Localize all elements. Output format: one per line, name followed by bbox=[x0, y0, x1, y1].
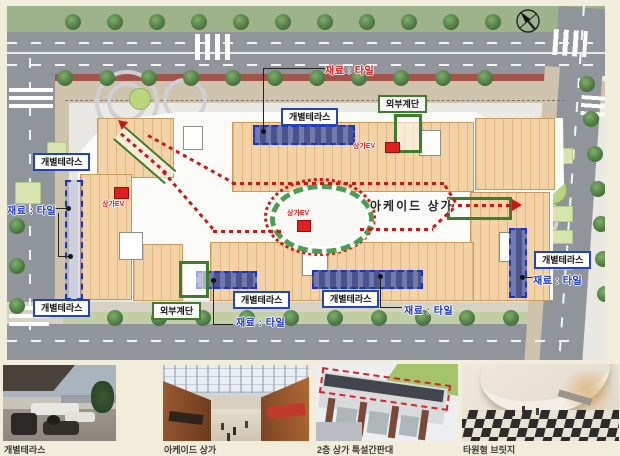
terrace-strip bbox=[312, 270, 423, 289]
terrace-strip bbox=[253, 125, 355, 145]
arcade-title: 아케이드 상가 bbox=[370, 197, 454, 214]
leader-line bbox=[263, 68, 264, 131]
tree-icon bbox=[371, 310, 387, 326]
ev-label: 상가EV bbox=[287, 208, 309, 218]
tree-icon bbox=[443, 14, 459, 30]
tree-icon bbox=[233, 14, 249, 30]
tree-icon bbox=[485, 14, 501, 30]
route-arrowhead bbox=[512, 199, 522, 211]
crosswalk bbox=[9, 88, 53, 110]
visitor-figure bbox=[536, 408, 539, 415]
material-label: 재료 : 타일 bbox=[533, 272, 582, 287]
tree-icon bbox=[359, 14, 375, 30]
tree-icon bbox=[183, 70, 199, 86]
tree-icon bbox=[435, 70, 451, 86]
shopper-figure bbox=[245, 421, 248, 428]
photo-terrace bbox=[3, 365, 116, 441]
tree-icon bbox=[401, 14, 417, 30]
photo-signboard-render bbox=[316, 364, 458, 441]
tree-icon bbox=[107, 14, 123, 30]
leader-line bbox=[213, 281, 214, 325]
ev-marker bbox=[385, 142, 400, 153]
terrace-label: 개별테라스 bbox=[41, 157, 82, 167]
route-dotted-line bbox=[450, 204, 512, 207]
site-plan-figure: 상가EV 상가EV 상가EV 개별테라스 개별테라스 개별테라스 개별테라스 개… bbox=[0, 0, 620, 456]
stairs-label: 외부계단 bbox=[160, 306, 193, 316]
tree-icon bbox=[225, 70, 241, 86]
tree-icon bbox=[595, 251, 605, 267]
photo-oval-bridge bbox=[462, 364, 619, 441]
oval-planter-ring bbox=[270, 184, 374, 254]
road-render bbox=[316, 422, 362, 441]
stairs-label-box: 외부계단 bbox=[378, 95, 427, 113]
photo-caption: 2층 상가 특설간판대 bbox=[317, 443, 393, 456]
ev-label: 상가EV bbox=[353, 141, 375, 151]
tree-icon bbox=[141, 70, 157, 86]
terrace-label: 개별테라스 bbox=[289, 112, 330, 122]
route-dotted-line bbox=[213, 230, 281, 233]
tree-icon bbox=[503, 310, 519, 326]
terrace-label: 개별테라스 bbox=[41, 303, 82, 313]
leader-line bbox=[380, 307, 402, 308]
tree-icon bbox=[597, 286, 605, 302]
leader-dot bbox=[66, 206, 71, 211]
tree-icon bbox=[57, 70, 73, 86]
tree-icon bbox=[309, 70, 325, 86]
leader-dot bbox=[68, 254, 73, 259]
bottom-road-lane-line bbox=[7, 340, 573, 342]
terrace-label-box: 개별테라스 bbox=[534, 251, 591, 269]
tree-icon bbox=[267, 70, 283, 86]
tree-icon bbox=[191, 14, 207, 30]
stairs-label: 외부계단 bbox=[386, 99, 419, 109]
terrace-label-box: 개별테라스 bbox=[322, 290, 379, 308]
wicker-chair bbox=[11, 413, 37, 435]
terrace-strip bbox=[509, 228, 527, 298]
terrace-label: 개별테라스 bbox=[330, 294, 371, 304]
storefront-glass bbox=[399, 415, 420, 437]
exit-corridor-box bbox=[447, 197, 512, 220]
leader-line bbox=[523, 277, 533, 278]
terrace-label: 개별테라스 bbox=[241, 295, 282, 305]
tree-icon bbox=[579, 76, 595, 92]
ev-label: 상가EV bbox=[102, 199, 124, 209]
tree-icon bbox=[477, 70, 493, 86]
stair-core bbox=[419, 130, 441, 156]
terrace-label: 개별테라스 bbox=[542, 255, 583, 265]
ev-marker bbox=[297, 220, 311, 232]
bottom-road bbox=[7, 324, 573, 360]
tree-icon bbox=[275, 14, 291, 30]
site-plan-map: 상가EV 상가EV 상가EV 개별테라스 개별테라스 개별테라스 개별테라스 개… bbox=[7, 6, 605, 360]
tree-icon bbox=[65, 14, 81, 30]
visitor-figure bbox=[522, 406, 525, 413]
leader-line bbox=[380, 277, 381, 308]
round-table bbox=[47, 415, 60, 425]
leader-line bbox=[263, 68, 325, 69]
stair-core bbox=[183, 126, 203, 150]
top-road bbox=[7, 32, 605, 76]
photo-caption: 개별테라스 bbox=[4, 443, 45, 456]
lawn-patch bbox=[15, 182, 41, 204]
route-dotted-line bbox=[360, 228, 433, 231]
tree-icon bbox=[593, 216, 605, 232]
terrace-awning bbox=[3, 365, 75, 391]
stair-core bbox=[119, 232, 143, 260]
shopper-figure bbox=[221, 423, 224, 430]
shopper-figure bbox=[227, 433, 230, 441]
terrace-label-box: 개별테라스 bbox=[233, 291, 290, 309]
route-dotted-line bbox=[232, 182, 447, 185]
plaza-planter bbox=[129, 88, 151, 110]
material-label: 재료 : 타일 bbox=[325, 62, 374, 77]
tree-icon bbox=[327, 310, 343, 326]
shop-block bbox=[475, 118, 555, 190]
ev-marker bbox=[114, 187, 129, 199]
leader-line bbox=[58, 213, 59, 257]
checkered-floor bbox=[462, 410, 619, 441]
storefront-glass bbox=[367, 411, 390, 436]
tree-icon bbox=[9, 298, 25, 314]
top-road-center-line bbox=[7, 52, 605, 54]
terrace-label-box: 개별테라스 bbox=[281, 108, 338, 126]
terrace-label-box: 개별테라스 bbox=[33, 153, 90, 171]
material-label: 재료 : 타일 bbox=[7, 202, 56, 217]
shopper-figure bbox=[233, 427, 236, 435]
photo-arcade-mall bbox=[163, 365, 309, 441]
crosswalk bbox=[195, 34, 235, 60]
terrace-strip bbox=[65, 180, 83, 300]
stairs-label-box: 외부계단 bbox=[152, 302, 201, 320]
tree-icon bbox=[149, 14, 165, 30]
photo-caption: 아케이드 상가 bbox=[164, 443, 216, 456]
tree-icon bbox=[283, 310, 299, 326]
crosswalk bbox=[552, 29, 588, 57]
leader-line bbox=[213, 324, 233, 325]
top-road-lane-line bbox=[7, 64, 605, 66]
terrace-label-box: 개별테라스 bbox=[33, 299, 90, 317]
leader-dot bbox=[261, 129, 266, 134]
external-stair-box bbox=[179, 261, 209, 298]
material-label: 재료 : 타일 bbox=[404, 302, 453, 317]
tree-icon bbox=[99, 70, 115, 86]
tree-icon bbox=[587, 146, 603, 162]
material-label: 재료 : 타일 bbox=[236, 314, 285, 329]
tree-icon bbox=[459, 310, 475, 326]
photo-caption: 타원형 브릿지 bbox=[463, 443, 515, 456]
north-compass-icon bbox=[513, 6, 543, 36]
top-road-lane-line bbox=[7, 42, 605, 44]
conifer-tree bbox=[91, 381, 114, 413]
tree-icon bbox=[9, 218, 25, 234]
mall-floor bbox=[211, 409, 261, 441]
tree-icon bbox=[317, 14, 333, 30]
tree-icon bbox=[107, 310, 123, 326]
tree-icon bbox=[590, 181, 605, 197]
tree-icon bbox=[583, 111, 599, 127]
tree-icon bbox=[9, 258, 25, 274]
tree-icon bbox=[393, 70, 409, 86]
visitor-figure bbox=[512, 410, 515, 416]
